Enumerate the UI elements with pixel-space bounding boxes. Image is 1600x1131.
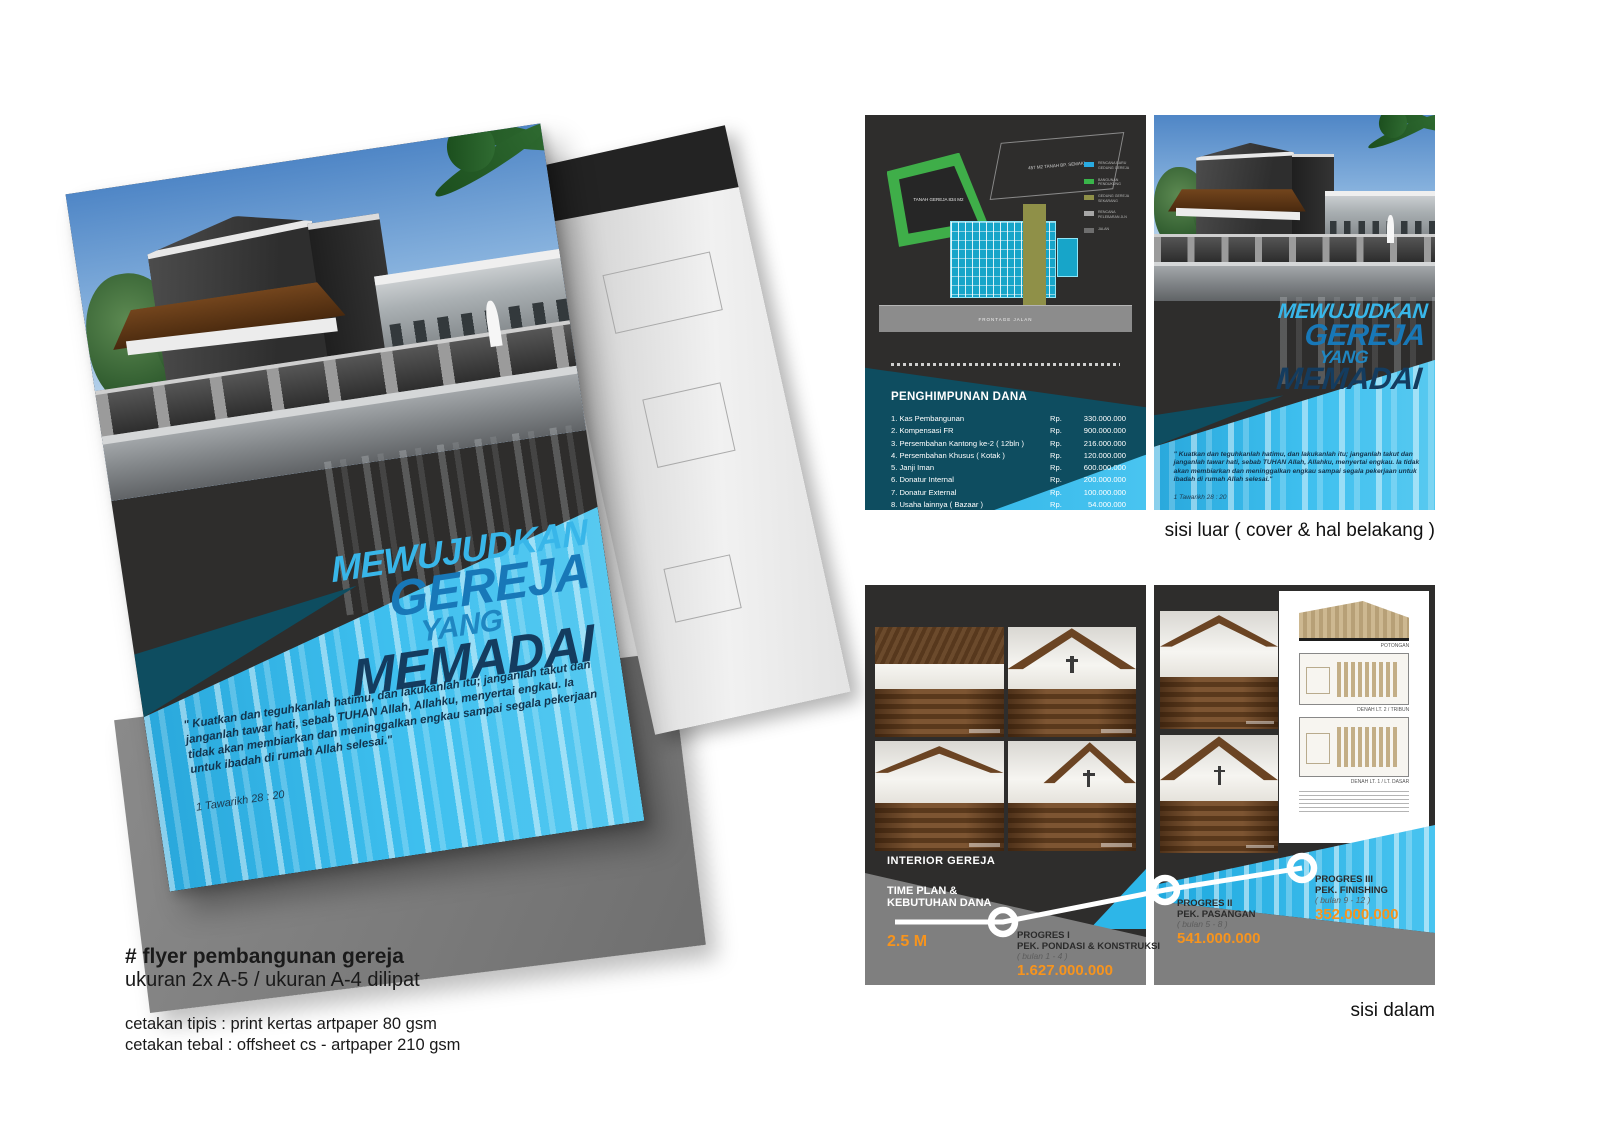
- funding-row: 6. Donatur InternalRp.200.000.000: [891, 474, 1126, 486]
- funding-amount: 600.000.000: [1068, 462, 1126, 474]
- currency: Rp.: [1050, 474, 1068, 486]
- interior-photo: [1160, 611, 1278, 729]
- annotation-title: # flyer pembangunan gereja: [125, 945, 460, 969]
- church-floorplan-wing: [1057, 238, 1077, 277]
- legend-label: RENCANA BARU GEDUNG GEREJA: [1098, 161, 1132, 170]
- funding-row: 8. Usaha lainnya ( Bazaar )Rp.54.000.000: [891, 499, 1126, 510]
- legend-swatch-lightgray: [1084, 211, 1094, 216]
- funding-row: 7. Donatur ExternalRp.100.000.000: [891, 487, 1126, 499]
- legend-label: JALAN: [1098, 227, 1109, 232]
- legend-item: JALAN: [1084, 227, 1132, 233]
- funding-amount: 330.000.000: [1068, 413, 1126, 425]
- legend-swatch-gray: [1084, 228, 1094, 233]
- milestone-amount: 1.627.000.000: [1017, 963, 1177, 980]
- funding-section: PENGHIMPUNAN DANA 1. Kas PembangunanRp.3…: [891, 391, 1126, 510]
- interior-photo-grid: [875, 627, 1136, 851]
- section-drawing: [1299, 601, 1409, 641]
- legend-item: RENCANA PELEBARAN JLN: [1084, 210, 1132, 219]
- bible-quote: " Kuatkan dan teguhkanlah hatimu, dan la…: [1174, 451, 1424, 485]
- funding-row: 2. Kompensasi FRRp.900.000.000: [891, 425, 1126, 437]
- drawing-notes: [1299, 791, 1409, 813]
- funding-name: 4. Persembahan Khusus ( Kotak ): [891, 450, 1050, 462]
- legend-swatch-green: [1084, 179, 1094, 184]
- dotted-divider: [891, 363, 1120, 366]
- frontage-road-label: FRONTAGE JALAN: [979, 317, 1033, 322]
- milestone-2: PROGRES II PEK. PASANGAN ( bulan 5 - 8 )…: [1177, 899, 1307, 948]
- inner-page-header-strip: [530, 125, 752, 225]
- funding-name: 3. Persembahan Kantong ke-2 ( 12bln ): [891, 438, 1050, 450]
- funding-row: 3. Persembahan Kantong ke-2 ( 12bln )Rp.…: [891, 438, 1126, 450]
- person-figure: [1387, 215, 1394, 243]
- funding-name: 5. Janji Iman: [891, 462, 1050, 474]
- funding-name: 8. Usaha lainnya ( Bazaar ): [891, 499, 1050, 510]
- funding-amount: 200.000.000: [1068, 474, 1126, 486]
- timeline-total: 2.5 M: [887, 933, 927, 951]
- interior-photo: [1008, 741, 1137, 851]
- building-render: [1154, 115, 1435, 301]
- legend-item: RENCANA BARU GEDUNG GEREJA: [1084, 161, 1132, 170]
- drawing-label: DENAH LT. 2 / TRIBUN: [1285, 705, 1423, 713]
- currency: Rp.: [1050, 499, 1068, 510]
- title-line-2: GEREJA: [1275, 322, 1426, 349]
- inner-page-drawing-mark: [602, 251, 722, 333]
- interior-photo: [875, 741, 1004, 851]
- legend-label: RENCANA PELEBARAN JLN: [1098, 210, 1132, 219]
- currency: Rp.: [1050, 487, 1068, 499]
- inner-left-panel: INTERIOR GEREJA: [865, 585, 1146, 985]
- interior-label: INTERIOR GEREJA: [887, 855, 995, 867]
- timeline-heading: TIME PLAN & KEBUTUHAN DANA: [887, 885, 992, 909]
- inner-spread: INTERIOR GEREJA POTONGAN DENAH LT. 2 / T…: [865, 585, 1435, 985]
- architectural-drawings: POTONGAN DENAH LT. 2 / TRIBUN DENAH LT. …: [1279, 591, 1429, 843]
- funding-amount: 100.000.000: [1068, 487, 1126, 499]
- currency: Rp.: [1050, 462, 1068, 474]
- milestone-amount: 352.000.000: [1315, 907, 1430, 924]
- street: [1154, 262, 1435, 301]
- funding-name: 1. Kas Pembangunan: [891, 413, 1050, 425]
- legend-label: BANGUNAN PENDUKUNG: [1098, 178, 1132, 187]
- legend-swatch-olive: [1084, 195, 1094, 200]
- site-lot-neighbor-label: 457 M2 TANAH BP. SEMAKI: [1029, 160, 1087, 171]
- bible-reference: 1 Tawarikh 28 : 20: [1174, 494, 1227, 501]
- milestone-period: ( bulan 5 - 8 ): [1177, 920, 1307, 930]
- milestone-3: PROGRES III PEK. FINISHING ( bulan 9 - 1…: [1315, 875, 1430, 924]
- funding-amount: 900.000.000: [1068, 425, 1126, 437]
- inner-page-drawing-mark: [663, 554, 741, 622]
- site-lot-church-label: TANAH GEREJA 834 M2: [913, 197, 963, 202]
- funding-row: 5. Janji ImanRp.600.000.000: [891, 462, 1126, 474]
- funding-amount: 216.000.000: [1068, 438, 1126, 450]
- milestone-amount: 541.000.000: [1177, 931, 1307, 948]
- cover-title: MEWUJUDKAN GEREJA YANG MEMADAI: [1271, 303, 1428, 393]
- outer-spread: TANAH GEREJA 834 M2 457 M2 TANAH BP. SEM…: [865, 115, 1435, 510]
- site-plan-legend: RENCANA BARU GEDUNG GEREJA BANGUNAN PEND…: [1084, 161, 1132, 232]
- legend-label: GEDUNG GEREJA SEKARANG: [1098, 194, 1132, 203]
- legend-item: GEDUNG GEREJA SEKARANG: [1084, 194, 1132, 203]
- annotation-print-2: cetakan tebal : offsheet cs - artpaper 2…: [125, 1035, 460, 1056]
- funding-name: 6. Donatur Internal: [891, 474, 1050, 486]
- interior-photo: [875, 627, 1004, 737]
- plan-drawing-level2: [1299, 653, 1409, 705]
- funding-name: 7. Donatur External: [891, 487, 1050, 499]
- funding-row: 1. Kas PembangunanRp.330.000.000: [891, 413, 1126, 425]
- milestone-period: ( bulan 1 - 4 ): [1017, 952, 1177, 962]
- milestone-1: PROGRES I PEK. PONDASI & KONSTRUKSI ( bu…: [1017, 931, 1177, 980]
- drawing-label: DENAH LT. 1 / LT. DASAR: [1285, 777, 1423, 785]
- funding-heading: PENGHIMPUNAN DANA: [891, 391, 1126, 403]
- palm-leaf: [447, 123, 495, 171]
- timeline-heading-line1: TIME PLAN &: [887, 885, 992, 897]
- legend-item: BANGUNAN PENDUKUNG: [1084, 178, 1132, 187]
- timeline-heading-line2: KEBUTUHAN DANA: [887, 897, 992, 909]
- legend-swatch-cyan: [1084, 162, 1094, 167]
- interior-photo-column: [1160, 611, 1278, 853]
- funding-row: 4. Persembahan Khusus ( Kotak )Rp.120.00…: [891, 450, 1126, 462]
- back-page-panel: TANAH GEREJA 834 M2 457 M2 TANAH BP. SEM…: [865, 115, 1146, 510]
- annotation-block: # flyer pembangunan gereja ukuran 2x A-5…: [125, 945, 460, 1055]
- funding-amount: 120.000.000: [1068, 450, 1126, 462]
- plan-drawing-level1: [1299, 717, 1409, 777]
- currency: Rp.: [1050, 413, 1068, 425]
- funding-amount: 54.000.000: [1068, 499, 1126, 510]
- currency: Rp.: [1050, 425, 1068, 437]
- interior-photo: [1160, 735, 1278, 853]
- inner-page-drawing-mark: [642, 382, 735, 468]
- funding-name: 2. Kompensasi FR: [891, 425, 1050, 437]
- site-plan: TANAH GEREJA 834 M2 457 M2 TANAH BP. SEM…: [879, 127, 1132, 341]
- title-line-4: MEMADAI: [1271, 365, 1422, 393]
- annotation-print-1: cetakan tipis : print kertas artpaper 80…: [125, 1014, 460, 1035]
- annotation-size: ukuran 2x A-5 / ukuran A-4 dilipat: [125, 969, 460, 992]
- drawing-label: POTONGAN: [1285, 641, 1423, 649]
- flyer-mockup: MEWUJUDKAN GEREJA YANG MEMADAI " Kuatkan…: [85, 85, 805, 975]
- currency: Rp.: [1050, 450, 1068, 462]
- frontage-road: FRONTAGE JALAN: [879, 305, 1132, 333]
- interior-photo: [1008, 627, 1137, 737]
- inner-spread-caption: sisi dalam: [1035, 1000, 1435, 1022]
- mockup-front-cover: MEWUJUDKAN GEREJA YANG MEMADAI " Kuatkan…: [66, 123, 645, 891]
- currency: Rp.: [1050, 438, 1068, 450]
- cover-page-panel: MEWUJUDKAN GEREJA YANG MEMADAI " Kuatkan…: [1154, 115, 1435, 510]
- existing-church-block: [1023, 204, 1046, 315]
- outer-spread-caption: sisi luar ( cover & hal belakang ): [835, 520, 1435, 542]
- milestone-period: ( bulan 9 - 12 ): [1315, 896, 1430, 906]
